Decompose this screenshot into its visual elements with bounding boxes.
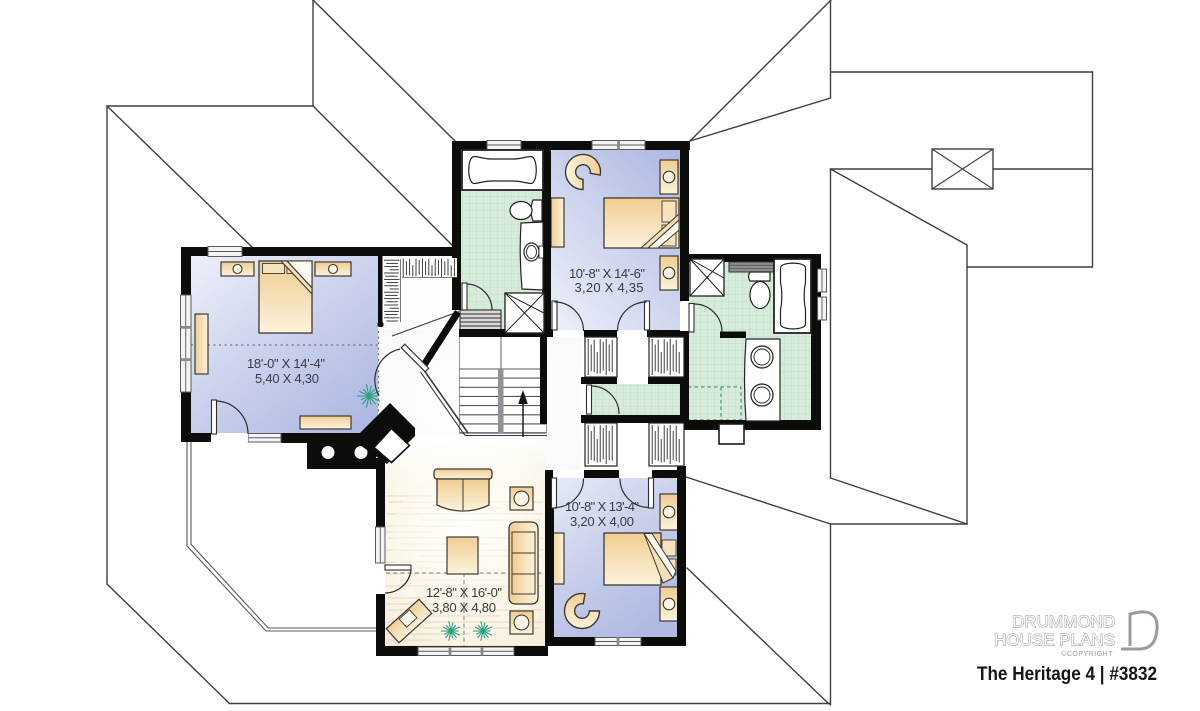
svg-text:5,40 X 4,30: 5,40 X 4,30 xyxy=(255,371,319,386)
svg-text:12'-8" X 16'-0": 12'-8" X 16'-0" xyxy=(426,585,502,600)
svg-text:10'-8" X 14'-6": 10'-8" X 14'-6" xyxy=(569,266,645,281)
svg-text:3,80 X 4,80: 3,80 X 4,80 xyxy=(432,600,496,615)
svg-text:HOUSE PLANS: HOUSE PLANS xyxy=(994,632,1115,650)
svg-text:18'-0" X 14'-4": 18'-0" X 14'-4" xyxy=(247,356,325,371)
svg-text:©COPYRIGHT: ©COPYRIGHT xyxy=(1061,650,1113,658)
svg-text:10'-8" X 13'-4": 10'-8" X 13'-4" xyxy=(565,499,639,514)
svg-text:3,20 X 4,00: 3,20 X 4,00 xyxy=(570,514,634,529)
svg-text:DRUMMOND: DRUMMOND xyxy=(1012,613,1115,631)
svg-text:3,20 X 4,35: 3,20 X 4,35 xyxy=(575,280,644,295)
svg-text:The Heritage 4 | #3832: The Heritage 4 | #3832 xyxy=(977,664,1157,685)
